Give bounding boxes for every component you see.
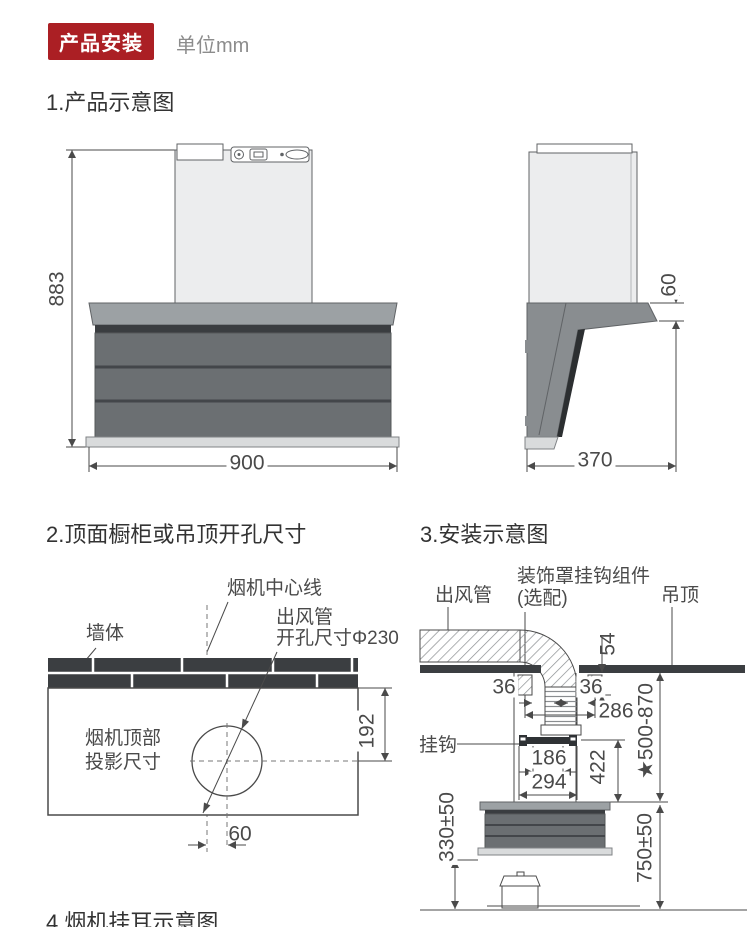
left-offset-dim: 36: [489, 677, 518, 698]
unit-label: 单位mm: [176, 29, 249, 58]
ceiling-to-hood-dim: ★500-870: [636, 680, 657, 782]
side-flue-height-dim: 60: [659, 270, 680, 299]
cutout-diagram: [40, 555, 410, 865]
span-dim: 286: [595, 701, 636, 722]
installation-diagram: [415, 575, 750, 925]
hook-width-dim: 294: [528, 772, 569, 793]
decor-cover-label-line2: (选配): [517, 588, 568, 610]
centerline-label: 烟机中心线: [227, 578, 322, 600]
section1-title: 1.产品示意图: [46, 85, 174, 117]
hood-top-to-counter-dim: 750±50: [635, 810, 656, 886]
ceiling-label: 吊顶: [661, 585, 699, 607]
decor-cover-label-line1: 装饰罩挂钩组件: [517, 566, 650, 588]
hood-bottom-dim: 330±50: [437, 789, 458, 865]
hole-offset-vertical-dim: 192: [357, 710, 378, 751]
hook-holes-dim: 186: [528, 748, 569, 769]
front-width-dim: 900: [226, 453, 267, 474]
section-badge: 产品安装: [48, 23, 154, 60]
section2-title: 2.顶面橱柜或吊顶开孔尺寸: [46, 517, 306, 549]
side-depth-dim: 370: [574, 450, 615, 471]
section3-title: 3.安装示意图: [420, 517, 548, 549]
front-height-dim: 883: [47, 268, 68, 309]
ceiling-gap-dim: 54: [598, 632, 619, 655]
duct-hole-label-line1: 出风管: [276, 607, 333, 629]
projection-label-line1: 烟机顶部: [85, 728, 161, 750]
installation-manual-page: 产品安装 单位mm 1.产品示意图 2.顶面橱柜或吊顶开孔尺寸 3.安装示意图 …: [0, 0, 750, 927]
hole-offset-horizontal-dim: 60: [228, 824, 251, 845]
cover-height-dim: 422: [588, 746, 609, 787]
wall-label: 墙体: [86, 623, 124, 645]
side-view-drawing: [500, 140, 710, 485]
section4-title-clipped: 4.烟机挂耳示意图: [46, 905, 218, 927]
projection-label-line2: 投影尺寸: [85, 752, 161, 774]
duct-hole-label-line2: 开孔尺寸Φ230: [276, 628, 399, 650]
duct-label: 出风管: [435, 585, 492, 607]
hook-label: 挂钩: [419, 735, 457, 757]
front-view-drawing: [40, 140, 420, 485]
right-offset-dim: 36: [576, 677, 605, 698]
